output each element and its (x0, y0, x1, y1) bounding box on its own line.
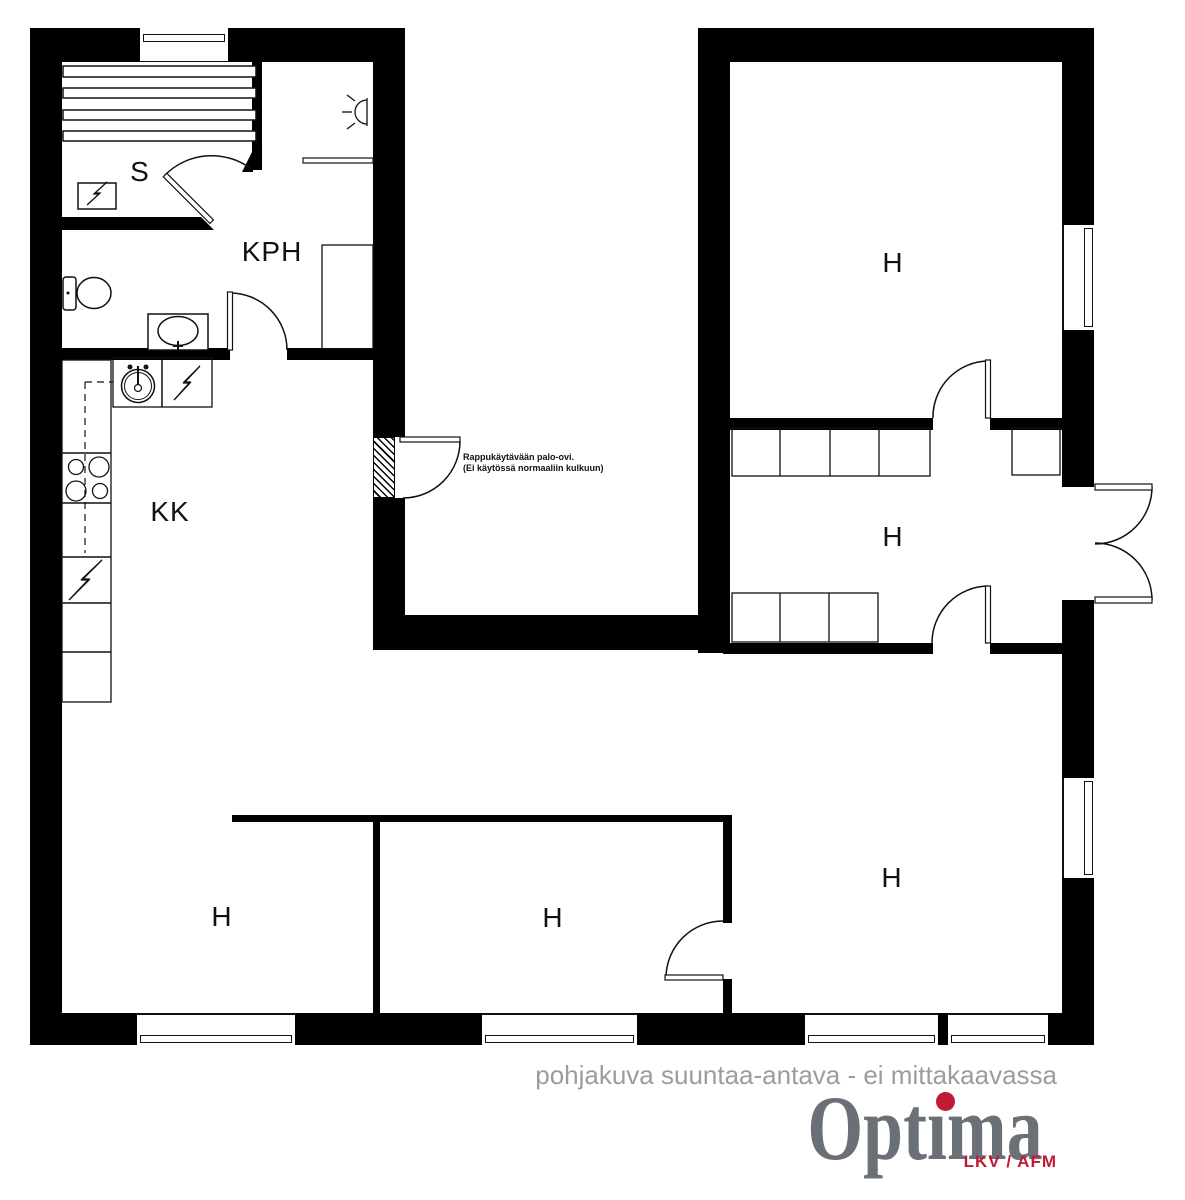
floor-plan: S KPH KK H H H H H Rappukäytävään palo-o… (0, 0, 1185, 1200)
fire-door-arc (403, 441, 460, 498)
optima-logo-subtitle: LKV / AFM (964, 1152, 1057, 1172)
bathroom-cabinet (322, 245, 373, 349)
bathroom-door-arc (230, 293, 287, 350)
sauna-door-arc (165, 156, 250, 175)
stove-icon (66, 457, 109, 501)
lightning-icon (69, 560, 102, 600)
door-arcs (165, 156, 1152, 977)
room-label-bottom-right: H (881, 862, 902, 894)
kitchen-counter-left (62, 360, 111, 702)
room-label-bathroom: KPH (242, 236, 303, 268)
entrance-door-leaf-lower (1095, 597, 1152, 603)
hall-bottom-door-leaf (986, 586, 991, 643)
sauna-bench-icon (63, 66, 256, 141)
toilet-icon (63, 277, 111, 310)
optima-logo-dot (936, 1092, 955, 1111)
hall-bottom-door-arc (932, 586, 988, 643)
top-right-room-door-arc (933, 361, 988, 418)
sink-icon (122, 365, 155, 403)
entrance-door-arc-upper (1095, 487, 1152, 544)
fire-door-note-line2: (Ei käytössä normaaliin kulkuun) (463, 463, 604, 474)
wardrobe-row-bottom (732, 593, 878, 642)
door-leaves (163, 173, 1152, 980)
wall-lamp-icon (342, 95, 367, 129)
room-label-bottom-left: H (211, 901, 232, 933)
wardrobe-single (1012, 428, 1060, 475)
lightning-icon (174, 366, 200, 400)
bathroom-door-leaf (228, 292, 233, 350)
fire-door-leaf (400, 437, 460, 442)
top-right-room-door-leaf (986, 360, 991, 418)
room-label-hall: H (882, 521, 903, 553)
kitchen-counter-top (113, 358, 212, 407)
radiator (303, 158, 373, 163)
fire-door-note: Rappukäytävään palo-ovi. (Ei käytössä no… (463, 452, 604, 474)
entrance-door-leaf-upper (1095, 484, 1152, 490)
bottom-middle-door-leaf (665, 975, 723, 980)
optima-logo-pre: Opt (808, 1077, 928, 1179)
room-label-kitchenette: KK (150, 496, 189, 528)
bottom-middle-door-arc (666, 921, 723, 977)
room-label-bottom-middle: H (542, 902, 563, 934)
washbasin-icon (148, 314, 208, 350)
fire-door-note-line1: Rappukäytävään palo-ovi. (463, 452, 604, 463)
sauna-door-leaf (163, 173, 213, 223)
sauna-heater-icon (78, 182, 116, 209)
plan-symbols (0, 0, 1185, 1200)
wardrobe-row-top (732, 428, 930, 476)
room-label-top-right: H (882, 247, 903, 279)
room-label-sauna: S (130, 156, 150, 188)
entrance-door-arc-lower (1095, 543, 1152, 600)
